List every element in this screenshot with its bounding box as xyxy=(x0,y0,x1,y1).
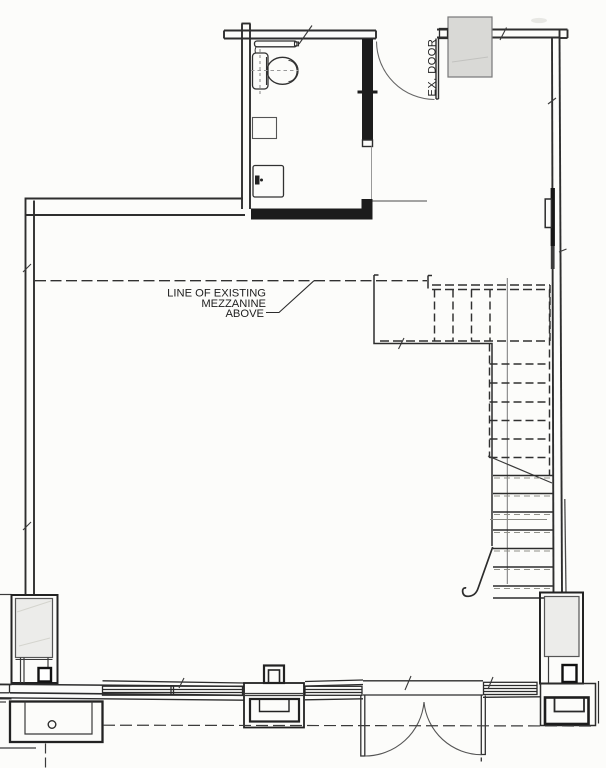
svg-text:ABOVE: ABOVE xyxy=(225,308,264,320)
svg-text:EX. DOOR: EX. DOOR xyxy=(427,39,439,97)
